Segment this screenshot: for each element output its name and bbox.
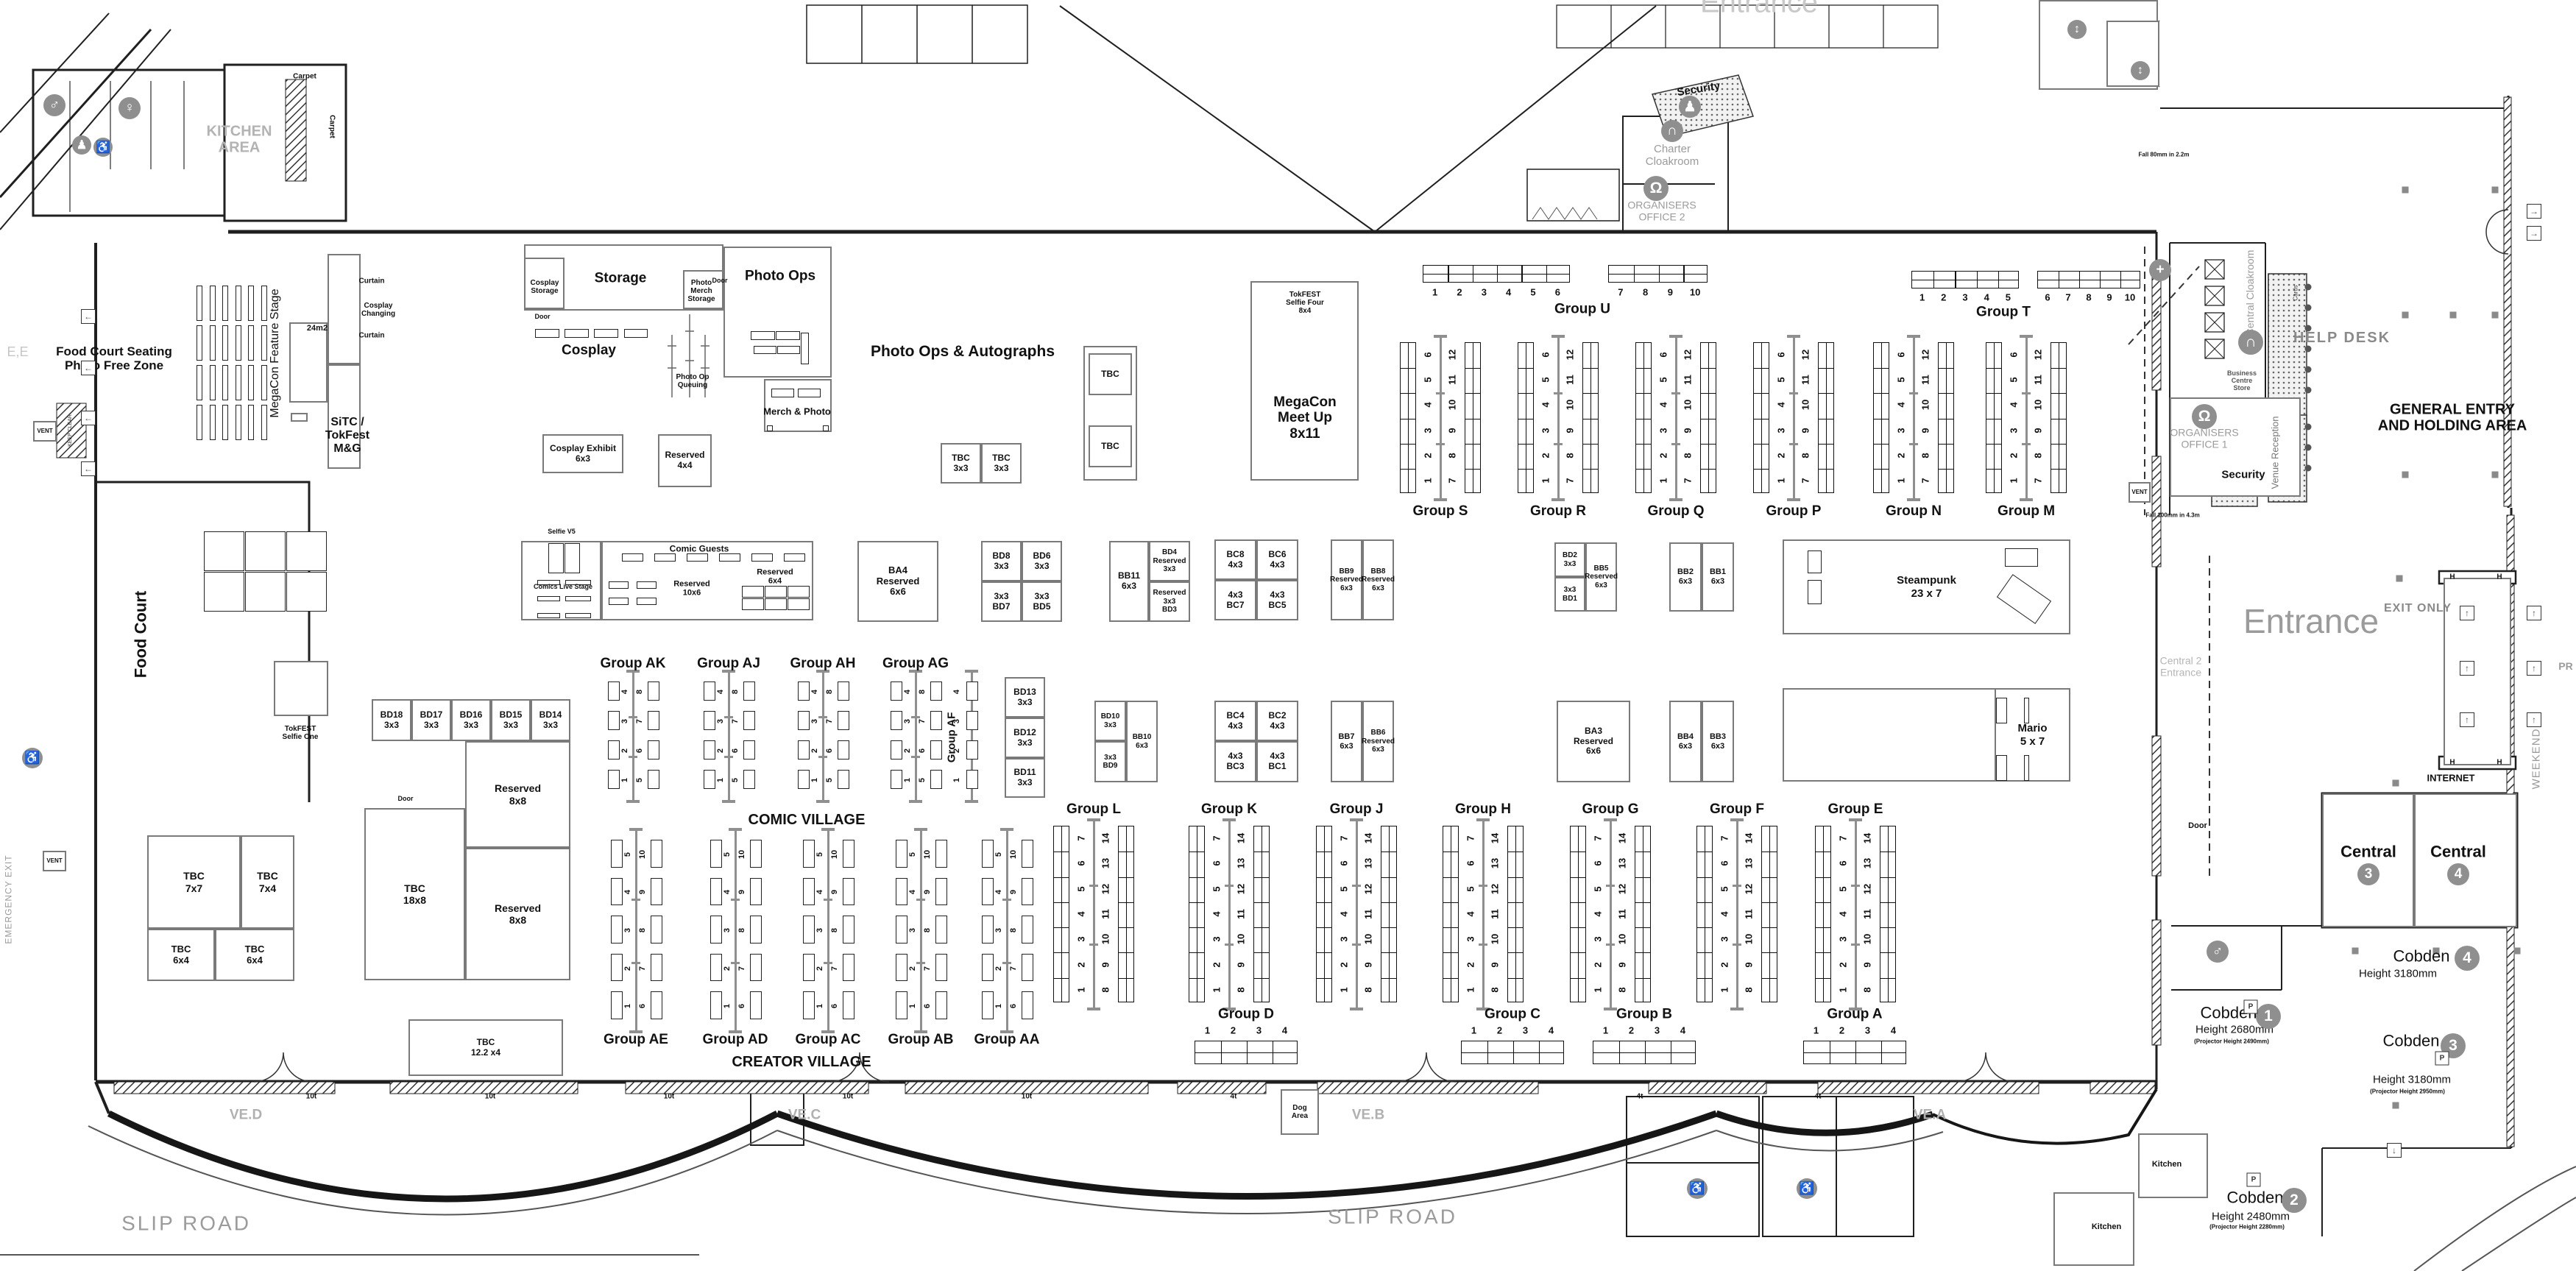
- group-k-num: 10: [1236, 934, 1247, 944]
- group-j-num: 10: [1363, 934, 1374, 944]
- group-k-num: 12: [1236, 883, 1247, 893]
- group-j-num: 1: [1339, 987, 1350, 992]
- group-g-num: 10: [1617, 934, 1628, 944]
- group-u-strip-2-num: 9: [1668, 287, 1673, 298]
- group-s-tables: [1400, 342, 1416, 493]
- booth-ba3: BA3Reserved6x6: [1557, 701, 1630, 782]
- security-right: Security: [2221, 470, 2265, 482]
- group-ae-num: 8: [638, 928, 647, 932]
- group-c-strip-num: 4: [1549, 1025, 1554, 1036]
- table: [537, 596, 560, 601]
- group-s-label: Group S: [1413, 503, 1468, 520]
- table: [2024, 698, 2029, 723]
- table: [719, 553, 740, 562]
- group-b-strip: [1593, 1041, 1696, 1064]
- group-l-num: 11: [1100, 909, 1111, 919]
- group-f-num: 3: [1719, 937, 1730, 942]
- group-e-num: 8: [1862, 987, 1873, 992]
- table: [777, 346, 800, 354]
- pillar: [2402, 312, 2409, 319]
- reserved-10x6: Reserved10x6: [673, 580, 710, 598]
- group-t-strip-2-num: 8: [2086, 292, 2091, 303]
- group-ab-num: 2: [908, 966, 917, 971]
- group-r-num: 2: [1540, 453, 1551, 458]
- group-n-num: 4: [1896, 403, 1907, 408]
- group-r-num: 8: [1565, 453, 1576, 458]
- gate-arrow-icon-2: ↑: [2460, 661, 2474, 676]
- table: [2024, 755, 2029, 781]
- table: [245, 531, 286, 571]
- group-ak-num: 7: [635, 719, 644, 723]
- floor-plan-linework: [0, 0, 2576, 1271]
- group-l-label: Group L: [1066, 801, 1121, 818]
- group-l-num: 7: [1076, 836, 1087, 841]
- group-aa-table: [982, 954, 994, 982]
- booth-bb1: BB16x3: [1702, 542, 1734, 612]
- group-q-num: 7: [1682, 478, 1694, 483]
- group-g-divider: [1610, 820, 1612, 1008]
- group-ad-table: [750, 840, 762, 868]
- kitchen-area: KITCHENAREA: [207, 124, 272, 157]
- group-aa-num: 8: [1009, 928, 1018, 932]
- group-l-num: 2: [1076, 962, 1087, 967]
- group-p-num: 9: [1800, 428, 1811, 433]
- group-t-strip-1-num: 2: [1941, 292, 1946, 303]
- group-g-num: 5: [1593, 886, 1604, 891]
- group-r-label: Group R: [1530, 503, 1586, 520]
- table: [609, 598, 629, 605]
- group-ac-num: 8: [830, 928, 839, 932]
- accessible-icon-4: ♿: [1797, 1178, 1817, 1199]
- stool: [2305, 367, 2312, 373]
- seating-bench: [261, 365, 267, 400]
- group-ah-num: 2: [810, 748, 819, 753]
- booth-bd10: BD103x3: [1094, 701, 1126, 741]
- group-j-num: 6: [1339, 861, 1350, 866]
- group-ag-num: 1: [903, 778, 912, 782]
- storage: Storage: [595, 270, 647, 286]
- group-ab-num: 3: [908, 928, 917, 932]
- booth-bb9: BB9Reserved6x3: [1331, 539, 1362, 620]
- pillar: [2492, 187, 2499, 194]
- priority-partial: PR: [2558, 661, 2572, 673]
- seating-bench: [236, 325, 241, 361]
- booth-tbc-7x7: TBC7x7: [147, 835, 241, 929]
- group-ac-label: Group AC: [795, 1032, 860, 1048]
- group-aa-divider: [1006, 829, 1008, 1031]
- group-a-strip-num: 2: [1839, 1025, 1844, 1036]
- group-b-strip-num: 4: [1680, 1025, 1685, 1036]
- group-ag-divider: [915, 671, 917, 801]
- group-g-num: 3: [1593, 937, 1604, 942]
- toilet-female-icon: ♀: [118, 97, 141, 119]
- group-ab-table: [935, 878, 947, 906]
- group-j-num: 5: [1339, 886, 1350, 891]
- group-ak-table: [648, 770, 659, 789]
- cobden-1-proj: (Projector Height 2490mm): [2194, 1039, 2269, 1046]
- group-a: Group A: [1827, 1006, 1882, 1022]
- group-n-label: Group N: [1886, 503, 1942, 520]
- floor-plan: KITCHENAREACarpetCarpetFood Court Seatin…: [0, 0, 2576, 1271]
- group-ag-table: [891, 681, 902, 701]
- group-k-num: 7: [1211, 836, 1222, 841]
- group-af-col-num: 1: [952, 778, 961, 782]
- door-storage: Door: [712, 277, 728, 284]
- group-ab-divider: [920, 829, 922, 1031]
- group-ag-num: 3: [903, 719, 912, 723]
- group-f-num: 13: [1744, 858, 1755, 868]
- hanger-icon-central: ∩: [2238, 330, 2263, 355]
- group-n-num: 6: [1896, 352, 1907, 357]
- cobden-4: Cobden: [2393, 948, 2449, 966]
- group-q-tables: [1700, 342, 1716, 493]
- parking-cobden-3: P: [2435, 1052, 2449, 1066]
- group-l-num: 8: [1100, 987, 1111, 992]
- cobden-3-proj: (Projector Height 2950mm): [2370, 1089, 2445, 1096]
- t4-2: 4t: [1637, 1092, 1643, 1100]
- group-k-num: 14: [1236, 833, 1247, 843]
- group-u-strip-2: [1608, 265, 1708, 283]
- room-number-4: 4: [2455, 946, 2480, 971]
- group-r-num: 11: [1565, 375, 1576, 385]
- group-ak-label: Group AK: [600, 656, 665, 672]
- group-s-num: 9: [1447, 428, 1458, 433]
- group-ah-num: 6: [825, 748, 834, 753]
- group-p-num: 2: [1776, 453, 1787, 458]
- group-ae-table: [611, 840, 623, 868]
- group-l-divider: [1093, 820, 1095, 1008]
- group-b-strip-num: 1: [1603, 1025, 1608, 1036]
- group-m-num: 6: [2009, 352, 2020, 357]
- room-cosplay-changing: [328, 254, 361, 364]
- group-e-divider: [1855, 820, 1857, 1008]
- group-ah-table: [838, 681, 849, 701]
- group-e-num: 5: [1838, 886, 1849, 891]
- group-k-divider: [1228, 820, 1231, 1008]
- group-q-num: 1: [1658, 478, 1669, 483]
- group-ad-label: Group AD: [702, 1032, 768, 1048]
- group-f-num: 5: [1719, 886, 1730, 891]
- group-p-num: 12: [1800, 350, 1811, 360]
- group-r-num: 7: [1565, 478, 1576, 483]
- group-q-divider: [1675, 336, 1677, 499]
- room-turnstiles: [2444, 578, 2511, 765]
- group-f-num: 9: [1744, 962, 1755, 967]
- group-k-num: 2: [1211, 962, 1222, 967]
- group-p-num: 1: [1776, 478, 1787, 483]
- group-a-strip-num: 4: [1891, 1025, 1896, 1036]
- group-ae-num: 10: [638, 850, 647, 859]
- table: [565, 543, 580, 573]
- booth-bd8: BD83x3: [981, 541, 1022, 581]
- group-ae-num: 4: [623, 890, 632, 894]
- door-arrow-icon-2: →: [2527, 226, 2541, 241]
- group-g-num: 7: [1593, 836, 1604, 841]
- group-e-num: 11: [1862, 909, 1873, 919]
- group-ac-table: [843, 878, 854, 906]
- booth-bb11: BB116x3: [1109, 541, 1149, 622]
- group-t-strip-1: [1911, 271, 2019, 288]
- table: [637, 581, 657, 589]
- group-ad-table: [710, 954, 722, 982]
- group-ag-label: Group AG: [882, 656, 949, 672]
- booth-bd18: BD183x3: [372, 699, 411, 741]
- group-ag-table: [930, 770, 942, 789]
- tokfest-selfie-four: TokFESTSelfie Four8x4: [1286, 291, 1324, 316]
- partial-ee: E,E: [7, 344, 28, 359]
- group-m-num: 1: [2009, 478, 2020, 483]
- group-t-strip-2-num: 6: [2045, 292, 2050, 303]
- group-ah-table: [798, 681, 810, 701]
- seating-bench: [197, 365, 202, 400]
- group-d-strip-num: 1: [1205, 1025, 1210, 1036]
- pillar: [2492, 472, 2499, 478]
- group-ag-table: [930, 711, 942, 730]
- group-aj-num: 4: [716, 690, 725, 694]
- group-ak-table: [648, 681, 659, 701]
- group-s-num: 4: [1423, 403, 1434, 408]
- group-n-divider: [1913, 336, 1915, 499]
- group-ah-label: Group AH: [790, 656, 855, 672]
- group-g-num: 1: [1593, 987, 1604, 992]
- group-c-strip: [1461, 1041, 1564, 1064]
- table: [776, 331, 800, 340]
- group-f-tables: [1761, 826, 1777, 1002]
- interior-details: [96, 21, 2224, 802]
- group-ae-table: [611, 916, 623, 943]
- group-ah-divider: [822, 671, 824, 801]
- group-n-num: 7: [1920, 478, 1931, 483]
- group-aa-table: [982, 991, 994, 1019]
- group-k-num: 1: [1211, 987, 1222, 992]
- h-1: H: [2449, 573, 2455, 581]
- group-e-num: 6: [1838, 861, 1849, 866]
- table: [784, 553, 805, 562]
- seating-bench: [222, 365, 228, 400]
- photo-ops-autographs: Photo Ops & Autographs: [871, 343, 1055, 361]
- group-aa-table: [982, 916, 994, 943]
- group-ah-table: [798, 711, 810, 730]
- group-e-num: 13: [1862, 858, 1873, 868]
- group-ac-num: 6: [830, 1004, 839, 1008]
- group-s-tables: [1465, 342, 1481, 493]
- curtain-2: Curtain: [359, 331, 385, 339]
- internet: INTERNET: [2427, 773, 2475, 785]
- photo-op-queuing: Photo OpQueuing: [676, 373, 710, 389]
- group-h-tables: [1443, 826, 1459, 1002]
- parking-cobden-2: P: [2247, 1173, 2261, 1187]
- group-n-num: 9: [1920, 428, 1931, 433]
- group-p-num: 4: [1776, 403, 1787, 408]
- group-ab-table: [896, 916, 907, 943]
- group-r-num: 3: [1540, 428, 1551, 433]
- label-door-tbc: Door: [385, 795, 426, 802]
- group-e-label: Group E: [1828, 801, 1883, 818]
- group-ah-table: [798, 740, 810, 760]
- entrance-top: Entrance: [1700, 0, 1818, 19]
- cobden-2: Cobden: [2226, 1189, 2283, 1208]
- table: [1808, 550, 1822, 573]
- table: [751, 331, 775, 340]
- door-central: Door: [2188, 821, 2207, 830]
- group-ak-num: 8: [635, 690, 644, 694]
- t10-2: 10t: [485, 1092, 495, 1100]
- group-aa-table: [1022, 916, 1033, 943]
- group-ab-label: Group AB: [888, 1032, 953, 1048]
- group-ac-table: [803, 878, 815, 906]
- group-n-num: 1: [1896, 478, 1907, 483]
- table: [204, 531, 244, 571]
- group-c-strip-num: 1: [1471, 1025, 1476, 1036]
- ve-d: VE.D: [230, 1107, 262, 1122]
- group-ag-num: 8: [918, 690, 927, 694]
- booth-bd4: BD4Reserved3x3: [1149, 541, 1190, 581]
- table: [798, 389, 821, 397]
- group-j-num: 3: [1339, 937, 1350, 942]
- group-s-num: 3: [1423, 428, 1434, 433]
- table: [565, 613, 591, 618]
- room-24m2: [289, 322, 328, 403]
- gate-arrow-icon-4: ↑: [2527, 606, 2541, 620]
- group-q-num: 11: [1682, 375, 1694, 385]
- group-c: Group C: [1485, 1006, 1540, 1022]
- group-m-tables: [1986, 342, 2002, 493]
- group-t-strip-1-num: 3: [1962, 292, 1967, 303]
- booth-reserved-8x8-b: Reserved8x8: [465, 848, 570, 980]
- group-s-num: 6: [1423, 352, 1434, 357]
- hanger-icon-charter: ∩: [1661, 120, 1683, 142]
- booth-bb3: BB36x3: [1702, 701, 1734, 782]
- group-u-strip-1: [1423, 265, 1570, 283]
- group-g-num: 6: [1593, 861, 1604, 866]
- group-ak-num: 5: [635, 778, 644, 782]
- seating-bench: [248, 405, 254, 440]
- group-aj-table: [704, 740, 715, 760]
- group-aa-num: 4: [994, 890, 1003, 894]
- escalator-arrow-icon: ↓: [2387, 1143, 2402, 1158]
- table: [548, 543, 564, 573]
- pillar: [2393, 780, 2399, 787]
- cards: Cards: [2293, 285, 2300, 300]
- table: [771, 389, 794, 397]
- accessible-icon-3: ♿: [1687, 1178, 1708, 1199]
- group-ag-num: 5: [918, 778, 927, 782]
- food-court-seating: Food Court SeatingPhoto Free Zone: [56, 344, 172, 372]
- photo-merch-storage: PhotoMerchStorage: [687, 279, 715, 304]
- group-ah-num: 4: [810, 690, 819, 694]
- group-aj-num: 5: [731, 778, 740, 782]
- group-ad-num: 5: [723, 852, 732, 857]
- group-t-strip-2-num: 10: [2125, 292, 2135, 303]
- pillar: [2352, 948, 2359, 955]
- central-3: Central: [2340, 843, 2396, 862]
- group-d-strip-num: 4: [1282, 1025, 1287, 1036]
- group-aj-num: 1: [716, 778, 725, 782]
- stool: [2305, 284, 2312, 291]
- venue-reception: Venue Reception: [2271, 416, 2282, 489]
- group-ad-num: 7: [737, 966, 746, 971]
- stool: [2305, 387, 2312, 394]
- group-af-col-table: [966, 711, 978, 730]
- group-ak-num: 2: [620, 748, 629, 753]
- seating-bench: [261, 286, 267, 321]
- booth-bd14: BD143x3: [531, 699, 570, 741]
- group-ae-num: 7: [638, 966, 647, 971]
- h-4: H: [2497, 758, 2502, 766]
- group-f-num: 12: [1744, 883, 1755, 893]
- seating-bench: [236, 365, 241, 400]
- door-cosplay-storage: Door: [535, 313, 551, 320]
- group-g-num: 9: [1617, 962, 1628, 967]
- group-m-num: 5: [2009, 378, 2020, 383]
- group-k-num: 3: [1211, 937, 1222, 942]
- seating-bench: [222, 286, 228, 321]
- group-ah-table: [838, 770, 849, 789]
- group-ag-table: [891, 770, 902, 789]
- group-t: Group T: [1976, 304, 2031, 319]
- t10-4: 10t: [843, 1092, 853, 1100]
- group-m-label: Group M: [1998, 503, 2055, 520]
- group-f-num: 10: [1744, 934, 1755, 944]
- table: [742, 598, 764, 610]
- group-f-divider: [1736, 820, 1738, 1008]
- group-q-num: 6: [1658, 352, 1669, 357]
- group-ae-table: [651, 991, 662, 1019]
- booth-bd6: BD63x3: [1022, 541, 1062, 581]
- t10-3: 10t: [664, 1092, 674, 1100]
- group-m-num: 7: [2033, 478, 2044, 483]
- group-q-label: Group Q: [1647, 503, 1704, 520]
- stool: [2305, 424, 2312, 431]
- group-u-strip-1-num: 1: [1432, 287, 1437, 298]
- cobden-3-height: Height 3180mm: [2373, 1074, 2451, 1087]
- group-ah-num: 7: [825, 719, 834, 723]
- booth-bb5: BB5Reserved6x3: [1585, 542, 1617, 612]
- stool: [2305, 445, 2312, 451]
- booth-bc1: 4x3BC1: [1256, 741, 1298, 782]
- group-u-strip-1-num: 6: [1555, 287, 1560, 298]
- group-p-num: 5: [1776, 378, 1787, 383]
- group-j-num: 11: [1363, 909, 1374, 919]
- group-m-num: 9: [2033, 428, 2044, 433]
- group-ac-divider: [827, 829, 829, 1031]
- group-ah-num: 3: [810, 719, 819, 723]
- group-ae-num: 2: [623, 966, 632, 971]
- group-ae-table: [651, 954, 662, 982]
- group-f-num: 2: [1719, 962, 1730, 967]
- group-e-num: 10: [1862, 934, 1873, 944]
- group-u-strip-2-num: 8: [1643, 287, 1648, 298]
- booth-bc3: 4x3BC3: [1214, 741, 1256, 782]
- group-ad-num: 8: [737, 928, 746, 932]
- gate-arrow-icon-3: ↑: [2460, 712, 2474, 727]
- seating-bench: [236, 286, 241, 321]
- group-e-num: 9: [1862, 962, 1873, 967]
- seating-bench: [197, 286, 202, 321]
- table: [765, 586, 787, 598]
- group-h-num: 4: [1465, 911, 1476, 916]
- h-3: H: [2449, 758, 2455, 766]
- group-u-strip-1-num: 2: [1457, 287, 1462, 298]
- group-aj-table: [743, 770, 755, 789]
- group-ad-num: 6: [737, 1004, 746, 1008]
- group-c-strip-num: 3: [1523, 1025, 1528, 1036]
- table: [609, 581, 629, 589]
- group-k-tables: [1189, 826, 1205, 1002]
- booth-tbc-7x4: TBC7x4: [241, 835, 294, 929]
- table: [788, 598, 810, 610]
- booth-reserved-4x4: Reserved4x4: [658, 434, 712, 487]
